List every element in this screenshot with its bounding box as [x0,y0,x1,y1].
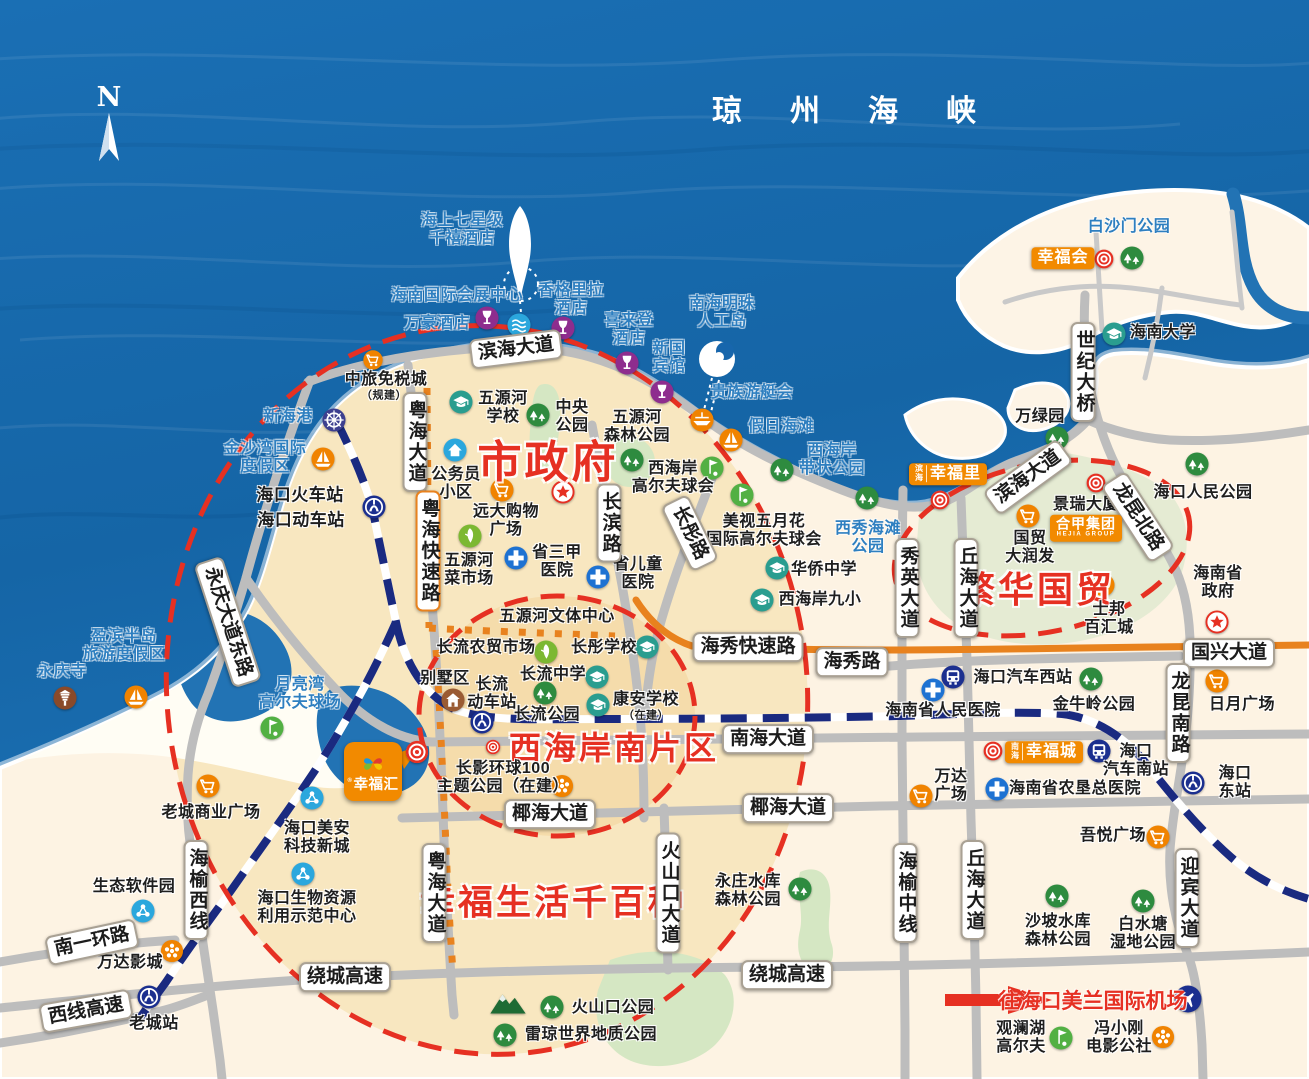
road-label: 海秀快速路 [692,632,803,662]
map-label: 长影环球100 主题公园（在建） [437,760,569,796]
map-label: 万豪酒店 [404,315,470,333]
map-label: 火山口公园 [572,999,655,1017]
school-icon [1102,322,1127,347]
road-label: 粤海大道 [403,392,428,492]
map-label: 金牛岭公园 [1053,696,1136,714]
project-logo-xingfuhui: ®幸福汇 [344,742,402,801]
brand-name: 幸福城 [1026,743,1077,761]
map-label: 新国 宾馆 [652,340,685,376]
map-label: 国贸 大润发 [1005,530,1055,566]
map-label: （规建） [361,390,407,403]
wine-icon [615,351,640,376]
map-label: 海南省 政府 [1193,565,1243,601]
tech-icon [291,862,316,887]
map-label: 生态软件园 [93,878,176,896]
road-label: 椰海大道 [504,799,596,829]
map-label: 永庄水库 森林公园 [715,873,781,909]
map-label: 永庆寺 [37,663,87,681]
map-label: 海口 汽车南站 [1103,743,1169,779]
road-label: 火山口大道 [656,833,681,954]
school-icon [750,588,775,613]
cart-icon [909,784,934,809]
rail-icon [362,495,387,520]
star-icon [1205,610,1230,635]
target-icon [404,739,430,765]
brand-label: 合甲集团HEJIA GROUP [1050,515,1122,542]
map-label: 海口火车站 [256,485,344,504]
rail-icon [470,710,495,735]
map-label: 沙坡水库 森林公园 [1025,913,1091,949]
airport-label: 往海口美兰国际机场 [999,985,1188,1015]
map-label: 海口人民公园 [1153,484,1252,502]
bus-icon [941,665,966,690]
road-label: 长滨路 [597,484,622,563]
map-label: 万绿园 [1015,408,1065,426]
wine-icon [650,380,675,405]
park-icon [1185,452,1210,477]
park-icon [1131,889,1156,914]
map-label: 五源河 菜市场 [444,552,494,588]
map-label: 观澜湖 高尔夫 [996,1020,1046,1056]
map-label: 香格里拉 酒店 [538,282,604,318]
road-label: 国兴大道 [1183,638,1275,668]
map-label: 省三甲 医院 [532,544,582,580]
park-icon [770,458,795,483]
brand-prefix: 滨海 [915,466,927,483]
map-label: 西海岸九小 [779,591,862,609]
map-label: 白水塘 湿地公园 [1110,916,1176,952]
mountain-icon [489,985,527,1023]
road-label: 海榆中线 [893,843,918,943]
park-icon [540,995,565,1020]
road-label: 丘海大道 [961,840,986,940]
brand-name: 幸福里 [930,465,981,483]
target-icon [485,739,502,756]
road-label: 海秀路 [815,647,888,677]
map-label: 省儿童 医院 [613,556,663,592]
cart-icon [1016,504,1041,529]
sail-icon [719,428,744,453]
road-label: 龙昆南路 [1166,663,1191,763]
tech-icon [300,786,325,811]
wheel-icon [322,408,347,433]
cart-icon [1205,669,1230,694]
rail-icon [1181,771,1206,796]
location-map: 琼州海峡 N ®幸福汇 海上七星级 千禧酒店海南国际会展中心万豪酒店香格里拉 酒… [0,0,1309,1079]
target-icon [982,740,1004,762]
brand-label: 滨海幸福里 [909,463,987,485]
map-label: 远大购物 广场 [473,503,539,539]
sea-title: 琼州海峡 [712,86,1024,130]
map-label: 冯小刚 电影公社 [1086,1020,1152,1056]
clover-logo-icon [358,751,388,777]
map-label: 别墅区 [420,670,470,688]
film-icon [1151,1025,1176,1050]
map-label: 老城站 [129,1015,179,1033]
map-label: 老城商业广场 [161,804,260,822]
school-icon [765,556,790,581]
tech-icon [131,899,156,924]
market-icon [534,640,559,665]
map-label: 金沙湾国际 度假区 [224,440,307,476]
map-label: 海口美安 科技新城 [284,820,350,856]
map-label: 西海岸 高尔夫球会 [632,460,715,496]
map-label: 海南大学 [1130,324,1196,342]
road-label: 丘海大道 [954,538,979,638]
brand-label: 南海幸福城 [1005,741,1083,763]
park-icon [533,681,558,706]
map-label: 海口动车站 [257,510,345,529]
golf-icon [1049,1026,1074,1051]
golf-icon [260,716,285,741]
home-icon [443,438,468,463]
map-label: 长流中学 [520,666,586,684]
road-label: 秀英大道 [895,538,920,638]
project-name: ®幸福汇 [348,778,399,793]
pagoda-icon [53,686,78,711]
pearl-island-icon [699,341,735,377]
cart-icon [363,350,384,371]
road-label: 南海大道 [722,724,814,754]
area-title: 市政府 [478,426,619,490]
map-label: 月亮湾 高尔夫球场 [259,676,342,712]
map-label: 万达影城 [97,954,163,972]
map-label: 西海岸 带状公园 [799,442,865,478]
area-title: 幸福生活千百种 [420,875,686,926]
map-label: 五源河 森林公园 [604,409,670,445]
park-icon [1045,884,1070,909]
map-label: 海上七星级 千禧酒店 [421,212,504,248]
map-label: 贵族游艇会 [711,384,794,402]
map-label: 日月广场 [1209,696,1275,714]
map-label: 中央 公园 [555,399,588,435]
road-label: 绕城高速 [741,960,833,990]
map-label: 五源河文体中心 [499,608,615,626]
villa-icon [441,688,466,713]
cart-icon [1146,825,1171,850]
map-label: 吾悦广场 [1080,827,1146,845]
school-icon [586,693,611,718]
map-label: 盈滨半岛 旅游度假区 [83,628,166,664]
map-label: 南海明珠 人工岛 [689,295,755,331]
school-icon [635,635,660,660]
road-label: 海榆西线 [184,840,209,940]
map-label: 五源河 学校 [478,390,528,426]
road-label: 粤海大道 [422,843,447,943]
park-icon [1120,246,1145,271]
map-label: 海南省人民医院 [885,702,1001,720]
park-icon [855,486,880,511]
compass-needle-icon [96,111,122,163]
road-label: 世纪大桥 [1071,322,1096,422]
brand-name: 幸福会 [1037,249,1088,267]
sail-icon [311,447,336,472]
map-label: 海口生物资源 利用示范中心 [257,890,356,926]
brand-subname: HEJIA GROUP [1057,532,1116,539]
map-label: 假日海滩 [748,418,814,436]
map-label: 喜来登 酒店 [604,312,654,348]
map-label: 西秀海滩 公园 [835,520,901,556]
school-icon [449,390,474,415]
map-label: 长流 动车站 [467,676,517,712]
hospital-icon [985,777,1010,802]
park-icon [788,877,813,902]
map-label: 雷琼世界地质公园 [525,1026,657,1044]
yacht-icon [690,408,715,433]
rail-icon [137,985,162,1010]
map-label: 海口 东站 [1218,765,1251,801]
sail-icon [124,685,149,710]
map-label: 海南省农垦总医院 [1009,780,1141,798]
target-icon [929,489,951,511]
map-label: 长流农贸市场 [436,639,535,657]
park-icon [493,1023,518,1048]
park-icon [526,403,551,428]
map-label: 海南国际会展中心 [391,287,523,305]
map-label: 万达 广场 [934,768,967,804]
cart-icon [196,774,221,799]
brand-prefix: 南海 [1011,744,1023,761]
map-label: 华侨中学 [791,561,857,579]
road-label: 迎宾大道 [1175,848,1200,948]
map-label: 白沙门公园 [1088,218,1171,236]
school-icon [585,665,610,690]
hospital-icon [586,565,611,590]
park-icon [1079,667,1104,692]
wine-icon [475,306,500,331]
map-label: 长彤学校 [571,639,637,657]
brand-name: 合甲集团 [1056,517,1116,532]
brand-label: 幸福会 [1031,247,1094,269]
map-label: 长流公园 [514,706,580,724]
road-label: 粤海快速路 [416,491,441,612]
road-label: 绕城高速 [299,962,391,992]
target-icon [1093,248,1115,270]
map-label: 新海港 [263,408,313,426]
map-label: 士邦 百汇城 [1084,601,1134,637]
map-label: （在建） [623,710,669,723]
hospital-icon [504,546,529,571]
map-label: 康安学校 [613,691,679,709]
golf-icon [730,483,755,508]
compass: N [96,84,122,168]
map-label: 海口汽车西站 [973,669,1072,687]
road-label: 椰海大道 [742,793,834,823]
film-icon [160,939,185,964]
map-label: 中旅免税城 [345,371,428,389]
compass-letter: N [96,84,122,111]
map-label: 美视五月花 国际高尔夫球会 [706,513,822,549]
